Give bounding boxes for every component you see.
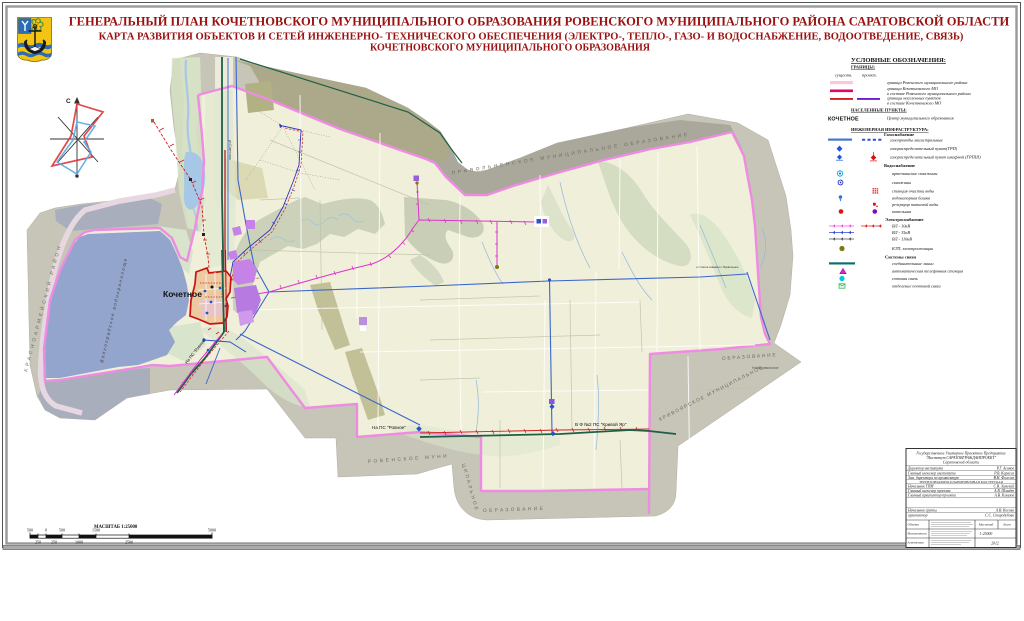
svg-text:КОЧЕТНОВСКОГО МУНИЦИПАЛЬНОГО О: КОЧЕТНОВСКОГО МУНИЦИПАЛЬНОГО ОБРАЗОВАНИЯ <box>370 43 651 54</box>
svg-text:котельная: котельная <box>892 209 911 214</box>
svg-text:артезианские скважины: артезианские скважины <box>892 171 938 176</box>
svg-text:ул.Советская: ул.Советская <box>228 140 232 160</box>
svg-text:Электроснабжение: Электроснабжение <box>885 217 924 222</box>
svg-text:Центр муниципального образован: Центр муниципального образования <box>886 116 954 121</box>
svg-text:в составе Кочетновского МО: в составе Кочетновского МО <box>887 101 941 106</box>
svg-text:НАСЕЛЕННЫЕ ПУНКТЫ:: НАСЕЛЕННЫЕ ПУНКТЫ: <box>851 108 907 113</box>
svg-text:Лист: Лист <box>1002 523 1011 527</box>
svg-text:проект.: проект. <box>862 73 877 78</box>
svg-text:КОЧЕТНОЕ: КОЧЕТНОЕ <box>828 117 859 123</box>
svg-text:А.В. Шмидт: А.В. Шмидт <box>993 489 1014 493</box>
svg-text:1:25000: 1:25000 <box>980 532 993 536</box>
svg-text:В Ф №2 ПС "Кривой Яр": В Ф №2 ПС "Кривой Яр" <box>575 421 627 427</box>
svg-text:ГРАНИЦЫ:: ГРАНИЦЫ: <box>851 65 876 70</box>
svg-text:соединительные линии: соединительные линии <box>892 261 934 266</box>
svg-text:Новопривольное: Новопривольное <box>752 366 779 370</box>
svg-text:А.В. Косова: А.В. Косова <box>995 509 1014 513</box>
svg-text:ГЕНЕРАЛЬНЫЙ ПЛАН КОЧЕТНОВСКОГ: ГЕНЕРАЛЬНЫЙ ПЛАН КОЧЕТНОВСКОГО МУНИЦИПАЛ… <box>69 15 1010 29</box>
svg-text:2500: 2500 <box>125 540 133 545</box>
svg-text:Масштаб: Масштаб <box>978 523 994 527</box>
svg-text:Исполнители: Исполнители <box>907 532 927 536</box>
svg-text:Начальник группы: Начальник группы <box>907 509 937 513</box>
svg-text:Саратовской области: Саратовской области <box>943 460 979 465</box>
svg-text:"Институт САРАТОВГРАЖДАНПРОЕКТ: "Институт САРАТОВГРАЖДАНПРОЕКТ" <box>926 456 997 460</box>
svg-text:250: 250 <box>35 540 41 545</box>
svg-text:500: 500 <box>59 528 65 533</box>
svg-text:А.В. Кляузов: А.В. Кляузов <box>994 494 1015 498</box>
svg-text:граница Ровенского муниципальн: граница Ровенского муниципального района <box>887 80 967 85</box>
svg-text:Газоснабжение: Газоснабжение <box>884 132 914 137</box>
svg-text:существ.: существ. <box>835 73 852 78</box>
svg-text:газопроводы магистральные: газопроводы магистральные <box>890 138 943 143</box>
svg-text:Агентство: Агентство <box>907 541 924 545</box>
svg-text:резервуар питьевой воды: резервуар питьевой воды <box>891 202 938 207</box>
svg-text:газораспределительный пункт(ГР: газораспределительный пункт(ГРП) <box>890 146 958 151</box>
svg-text:КАРТА РАЗВИТИЯ ОБЪЕКТОВ И СЕТЕ: КАРТА РАЗВИТИЯ ОБЪЕКТОВ И СЕТЕЙ ИНЖЕНЕРН… <box>99 31 964 43</box>
svg-text:На ПС "Ровное": На ПС "Ровное" <box>372 425 406 430</box>
svg-text:от ствола скважин с.Привольное: от ствола скважин с.Привольное <box>696 265 739 269</box>
svg-text:5000: 5000 <box>208 528 216 533</box>
svg-text:МАСШТАБ 1:25000: МАСШТАБ 1:25000 <box>94 525 138 530</box>
svg-text:ТЕРРИТОРИАЛЬНО-ПЛАНИРОВОЧНАЯ М: ТЕРРИТОРИАЛЬНО-ПЛАНИРОВОЧНАЯ МАСТЕРСКАЯ <box>919 480 1003 484</box>
svg-text:1500: 1500 <box>92 528 100 533</box>
svg-text:Кочетное: Кочетное <box>163 289 202 299</box>
svg-text:скважины: скважины <box>892 180 911 185</box>
svg-text:УСЛОВНЫЕ ОБОЗНАЧЕНИЯ:: УСЛОВНЫЕ ОБОЗНАЧЕНИЯ: <box>851 57 946 64</box>
svg-text:водонапорная башня: водонапорная башня <box>892 196 930 201</box>
svg-text:Главный архитектор проекта: Главный архитектор проекта <box>907 493 956 498</box>
svg-text:Системы связи: Системы связи <box>885 255 916 260</box>
svg-text:ВЛ - 35кВ: ВЛ - 35кВ <box>892 230 910 235</box>
svg-text:Директор института: Директор института <box>907 467 943 471</box>
svg-text:С: С <box>66 98 71 105</box>
svg-text:ВЛ - 110кВ: ВЛ - 110кВ <box>892 237 912 242</box>
svg-text:500: 500 <box>27 528 33 533</box>
svg-text:С.В. Замский: С.В. Замский <box>993 484 1014 489</box>
svg-text:Главный инженер проекта: Главный инженер проекта <box>907 488 951 493</box>
svg-text:сотовая связь: сотовая связь <box>892 276 918 281</box>
svg-text:Р.Г. Асанов: Р.Г. Асанов <box>996 467 1015 471</box>
svg-text:архитектор: архитектор <box>908 513 928 517</box>
svg-text:Начальник ТПМ: Начальник ТПМ <box>907 485 934 489</box>
svg-text:ВЛ - 10кВ: ВЛ - 10кВ <box>892 224 910 229</box>
svg-text:250: 250 <box>51 540 57 545</box>
svg-text:станция очистки воды: станция очистки воды <box>892 189 934 194</box>
svg-text:отделение почтовой связи: отделение почтовой связи <box>892 284 941 289</box>
svg-text:газораспределительный пункт шк: газораспределительный пункт шкафной (ГРП… <box>890 155 981 160</box>
svg-text:1000: 1000 <box>75 540 83 545</box>
svg-text:Объект: Объект <box>908 523 920 527</box>
svg-text:Государственное Унитарное Прое: Государственное Унитарное Проектное Пред… <box>915 452 1006 456</box>
svg-text:2012: 2012 <box>991 542 999 546</box>
svg-text:Главный инженер института: Главный инженер института <box>907 471 956 476</box>
svg-text:Водоснабжение: Водоснабжение <box>884 163 915 168</box>
svg-text:С.С. Стародубова: С.С. Стародубова <box>985 513 1014 517</box>
svg-text:автоматическая телефонная стан: автоматическая телефонная станция <box>892 269 963 274</box>
svg-text:0: 0 <box>45 528 47 533</box>
